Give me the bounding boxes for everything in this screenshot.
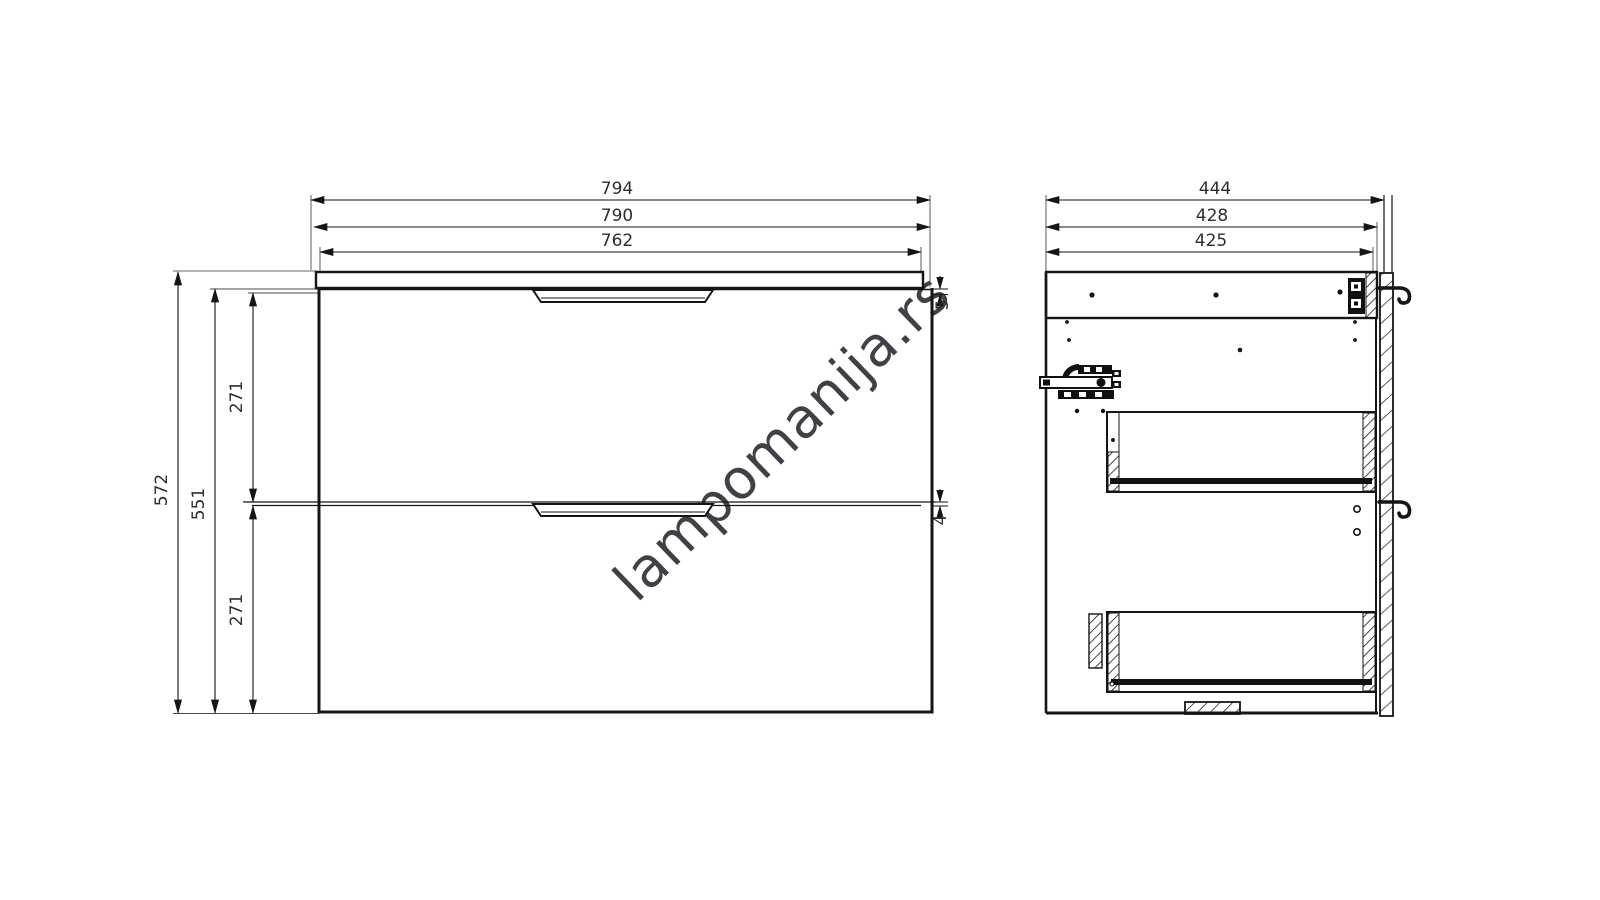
dim-label-444: 444 <box>1199 179 1231 199</box>
dim-label-762: 762 <box>601 231 633 251</box>
wall-strip <box>1380 273 1393 716</box>
dim-label-4: 4 <box>931 515 951 526</box>
front-view: 794 790 762 572 551 271 271 5 4 <box>152 179 953 714</box>
drawer-handle-top <box>533 290 713 302</box>
dim-label-425: 425 <box>1195 231 1227 251</box>
drawer-handle-bottom <box>533 504 713 516</box>
countertop <box>316 272 923 288</box>
dim-label-794: 794 <box>601 179 633 199</box>
side-view: 444 428 425 <box>1040 179 1410 716</box>
dim-label-572: 572 <box>152 474 172 506</box>
drawer-slide-mechanism <box>1040 364 1121 413</box>
dim-label-790: 790 <box>601 206 633 226</box>
lower-drawer-box <box>1089 612 1376 692</box>
dim-label-428: 428 <box>1196 206 1228 226</box>
side-panel-holes <box>1065 320 1357 352</box>
dim-label-5: 5 <box>933 300 953 311</box>
dim-label-271-top: 271 <box>227 381 247 413</box>
watermark-text: lampomanija.rs <box>601 261 962 613</box>
side-panel-open-holes <box>1354 506 1360 535</box>
dim-label-271-bottom: 271 <box>227 594 247 626</box>
dim-label-551: 551 <box>189 488 209 520</box>
technical-drawing: lampomanija.rs <box>0 0 1600 900</box>
wall-hanger-fitting <box>1348 273 1377 318</box>
upper-drawer-box <box>1107 412 1376 492</box>
drawing-canvas: lampomanija.rs <box>0 0 1600 900</box>
bottom-rail-section <box>1185 702 1240 714</box>
side-top-band <box>1046 272 1377 318</box>
